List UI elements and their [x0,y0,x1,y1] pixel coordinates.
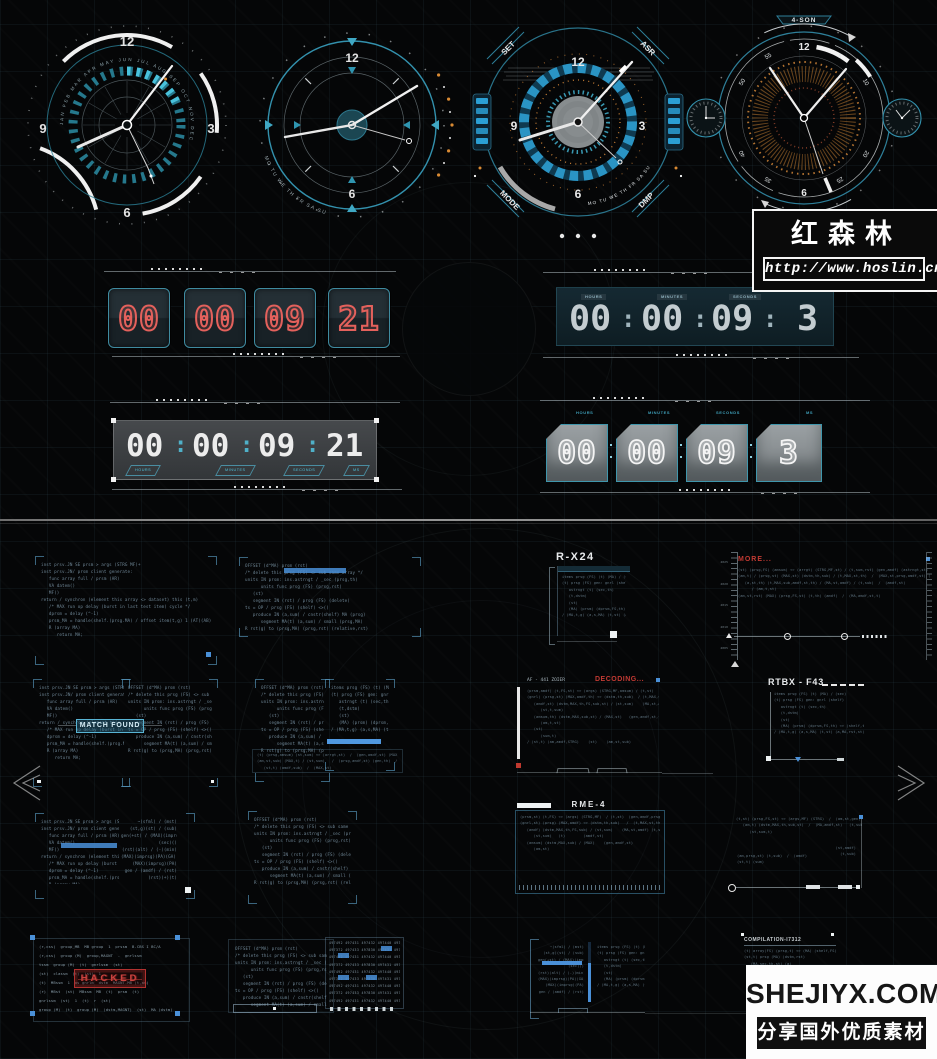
terminal-text: items prsg (FS) (t) (MA) / (sec)(t) prsg… [558,572,630,636]
corner-square [175,935,180,940]
colon: : [693,307,707,331]
terminal-panel-12: OFFSET (d^MA) prsm (rst)/* delete this p… [248,811,357,904]
analog-clock-days: 12 6 MO TU WE TH FR SA SU [245,20,459,230]
banner-lead-line [142,725,162,726]
orange-marker-dot [164,78,167,81]
terminal-text: OFFSET (d^MA) prsm (rst)/* delete this p… [235,945,327,1007]
watermark-hoslin: 红森林 http://www.hoslin.cn/ [752,209,937,292]
second-hand [804,118,823,174]
watermark-hoslin-title: 红森林 [754,219,937,249]
title-underline-dashes [822,684,864,686]
terminal-text-right-col: items prsg (FS) (t) (MA) / (sec)(t) prsg… [597,944,645,996]
footer-strip-panel: (t) (prsg,amsum) (st,sum) <> (arrgt,st) … [252,749,403,773]
flip-digit-card-seconds: 09 [686,424,748,482]
top-tab-label: 4-SON [792,17,817,24]
flip-digit-card-ms: 3 [756,424,822,482]
panel-title-rtbx: RTBX - F43 [768,677,824,687]
minute-numeral-25: 25 [835,175,844,184]
corner-handle [374,418,379,423]
terminal-text: (st) (prsg,FS) (amsum) <> (arrgt) (STRG,… [738,567,930,613]
cursor-square [211,780,215,784]
colon: : [763,307,777,331]
timeline-dash [838,885,852,889]
corner-tick [741,933,744,936]
timeline-dash [806,885,820,889]
marker-square [859,815,863,819]
digit-ms: 21 [326,430,363,462]
corner-square [175,1011,180,1016]
progress-end-square [516,763,521,768]
rme-panel: (prsm,st) (t,FS) <> (args) (STRG,MF) / (… [515,810,665,894]
flip-digit: 00 [118,302,160,335]
flip-digit: 00 [557,438,596,469]
seconds-label: SECONDS [716,410,740,416]
brace-left [549,567,555,645]
digit-seconds: 09 [711,301,753,337]
vertical-ruler: 40254020401540104005 [713,552,738,660]
highlight-bar [542,961,582,965]
corner-square [30,935,35,940]
terminal-panel-rtbx: items prsg (FS) (t) (MA) / (sec)(t) prsg… [774,691,864,739]
decoding-status: DECODING... [595,676,644,684]
panel-underline [557,641,617,642]
digit-hours: 00 [126,430,163,462]
progress-knob [273,1007,276,1010]
colon-dot [750,456,752,458]
arrowhead-bottom [761,200,769,208]
terminal-text: items prsg (FS) (t) (MA) / (sec)(t) prsg… [774,691,864,739]
terminal-text: inst prsv.JN SE prsm > args (STRG MF)+in… [39,684,124,782]
cursor-square [610,631,617,638]
bottom-dots [560,234,596,238]
terminal-text-bottom: (am,prsg,st) (t,sub) / (amdf)(st,t) (sum… [737,853,827,869]
connector-arrow [795,757,801,762]
match-found-banner: MATCH FOUND [76,719,144,733]
progress-outline-bar [233,1004,317,1013]
progress-bar [327,739,381,744]
terminal-text: OFFSET (d^MA) prsm (rst)/* delete this p… [254,816,351,899]
progress-bar-vertical [588,942,591,1002]
colon-dot [680,456,682,458]
digital-timer-gray: 00 : 00 : 09 : 21 HOURS MINUTES SECONDS … [113,420,377,480]
flip-digit: 3 [779,438,799,469]
circuit-decor [104,268,396,275]
timeline-node [728,884,736,892]
flip-digit-card-seconds: 09 [254,288,316,348]
numeral-6: 6 [349,187,356,201]
second-hand-dot [150,175,153,178]
flip-digit-card-hours: 00 [546,424,608,482]
colon: : [174,434,187,458]
numeral-9: 9 [511,119,518,133]
numeral-6: 6 [801,188,807,199]
panel-spine [770,692,771,757]
triangle-marker-top [347,38,357,46]
triangle-marker-right [431,120,439,130]
cursor-square [185,887,191,893]
numeral-12: 12 [345,51,359,65]
watermark-hoslin-url: http://www.hoslin.cn/ [763,257,925,281]
seconds-chip: SECONDS [283,465,325,476]
bottom-notch [558,1008,588,1013]
background-circle-bottom-2 [302,600,660,958]
terminal-text: (prsm,st) (t,FS) <> (args) (STRG,MF) / (… [520,814,660,870]
section-divider [0,519,937,521]
marker-square [656,678,660,682]
panel-title-more: MORE... [738,556,772,563]
circuit-decor [112,353,400,360]
flip-digit: 00 [194,302,236,335]
cursor-square [206,652,211,657]
hours-chip: HOURS [125,465,161,476]
second-hand-dot [407,139,412,144]
terminal-panel-6: OFFSET (d^MA) prsm (rst)/* delete this p… [122,679,218,787]
clock-hub [801,115,808,122]
subdial-left-hub [705,117,707,119]
colon: : [240,434,253,458]
bottom-notch [596,768,627,773]
terminal-text-right-col: ~(sfml) / (mst)(st,g)(st) / (sub)gen(+st… [121,818,177,884]
progress-bar-vertical [517,687,520,759]
hour-hand [78,125,127,147]
minute-numeral-10: 10 [861,78,870,87]
watermark-shejiyx-site: SHEJIYX.COM [746,979,937,1009]
connector-end-dash [837,758,844,761]
numeral-6: 6 [123,205,130,220]
flip-digit: 21 [338,302,380,335]
terminal-text-left-col: ~(sfml) / (mst)(st,g)(st) / (sub)gen(+st… [538,944,584,996]
terminal-panel-11: inst prsv.JN SE prsm > args (STRG MF)+in… [35,813,195,899]
terminal-text: (t,st) (prsg,FS,st) <> (args,MF) (STRG) … [736,816,862,840]
timeline-node [784,633,791,640]
decoding-panel: AF - 441 ZOIER DECODING... (prsm,amdf) (… [512,676,662,774]
hex-highlight [338,975,349,980]
background-disc-top [402,262,536,396]
panel-title-rx24: R-X24 [556,551,595,563]
timeline-dashes [862,635,888,638]
panel-header-af: AF - 441 ZOIER [527,678,565,684]
flip-digit-card-minutes: 00 [184,288,246,348]
minute-numeral-40: 40 [738,149,747,158]
circuit-decor [112,486,402,493]
subdial-right-hub [901,117,903,119]
minute-numeral-20: 20 [861,149,870,158]
circuit-decor [543,354,859,361]
orange-dot-column [437,73,454,176]
bold-arc-2 [856,60,870,77]
hex-highlight [338,953,349,958]
analog-clock-months: JAN FEB MAR APR MAY JUN JUL AUG SEP OCT … [20,16,234,234]
numeral-3: 3 [207,121,214,136]
watermark-shejiyx: SHEJIYX.COM 分享国外优质素材 [746,965,937,1059]
minute-numeral-55: 55 [764,52,773,61]
circuit-decor [110,399,400,406]
triangle-marker-left [265,120,273,130]
hex-highlight [366,975,377,980]
panel-title-compilation: COMPILATION-I7312 [744,936,836,946]
ruler-labels: 40254020401540104005 [713,552,737,660]
terminal-panel-rx24: items prsg (FS) (t) (MA) / (sec)(t) prsg… [557,566,630,636]
timeline-triangle [726,633,732,638]
hexdump-panel: 497492 497431 497432 497440 493426 49743… [325,937,404,1009]
hacked-stamp: HACKED [74,969,146,988]
numeral-9: 9 [39,121,46,136]
bottom-notch [556,768,589,773]
arc-segment [143,177,201,214]
circuit-decor [540,489,870,496]
minute-hand [352,86,417,125]
numeral-3: 3 [639,119,646,133]
digit-minutes: 00 [192,430,229,462]
triangle-marker-bottom [347,204,357,212]
minute-numeral-50: 50 [739,78,748,87]
panel-title-rme: RME-4 [515,800,663,809]
corner-tick [831,933,834,936]
flip-digit-card-ms: 21 [328,288,390,348]
numeral-12: 12 [120,34,134,49]
colon-dot [610,444,612,446]
terminal-panel-more: (st) (prsg,FS) (amsum) <> (arrgt) (STRG,… [738,567,930,613]
banner-lead-line [58,725,76,726]
terminal-text-left-col: inst prsv.JN SE prsm > args (STRG MF)+in… [41,818,119,884]
flip-digit: 09 [264,302,306,335]
panel-bottom-line-ext [662,773,713,774]
clock-hub [574,118,582,126]
analog-clock-mode-dial: SET ASR MODE DMP 12 3 6 [470,10,686,242]
corner-handle [374,477,379,482]
clock-hub [123,121,132,130]
connector-line [771,759,839,760]
colon: : [306,434,319,458]
arc-segment [63,35,172,61]
second-hand-tip [825,178,831,192]
panel-spine-right [861,816,862,888]
numeral-12: 12 [571,55,585,69]
colon: : [621,307,635,331]
terminal-panel-1: inst prsv.JN SE prsm > args (STRG MF)+in… [35,556,217,665]
watermark-shejiyx-tagline: 分享国外优质素材 [757,1017,926,1049]
digit-minutes: 00 [641,301,683,337]
digit-seconds: 09 [258,430,295,462]
ms-label: MS [806,410,813,416]
tick-row [519,885,661,890]
digit-hours: 00 [569,301,611,337]
corner-handle [111,477,116,482]
digit-ms: 3 [797,301,818,337]
arrowhead-top [848,33,856,42]
hex-footer-squares [330,1007,394,1011]
edge-chevron-right [888,762,930,804]
numeral-12: 12 [798,42,810,53]
highlight-bar [284,568,346,573]
sci-fi-hud-canvas: JAN FEB MAR APR MAY JUN JUL AUG SEP OCT … [0,0,937,1059]
ruler-pointer-triangle [731,661,739,667]
minutes-label: MINUTES [648,410,670,416]
terminal-text: (t) (prsg,amsum) (st,sum) <> (arrgt,st) … [257,752,398,770]
minute-numeral-35: 35 [764,175,773,184]
numeral-6: 6 [575,187,582,201]
colon-dot [680,444,682,446]
circuit-decor [540,397,870,404]
timeline-node [841,633,848,640]
edge-chevron-left [8,762,50,804]
terminal-text: OFFSET (d^MA) prsm (rst)/* delete this p… [128,684,212,782]
minutes-chip: MINUTES [215,465,255,476]
terminal-panel-16: OFFSET (d^MA) prsm (rst)/* delete this p… [228,939,334,1013]
colon-dot [610,456,612,458]
flip-digit: 00 [627,438,666,469]
arrow-arc-top [764,24,851,37]
digital-timer-teal: HOURS MINUTES SECONDS 00 : 00 : 09 : 3 [556,287,834,346]
timeline-end-square [856,885,860,889]
analog-clock-chrono: 4-SON 5 10 20 25 35 40 50 55 12 6 [673,6,935,234]
hacked-text: HACKED [81,974,140,984]
terminal-text: inst prsv.JN SE prsm > args (STRG MF)+in… [41,561,211,660]
flip-digit: 09 [697,438,736,469]
corner-handle [111,418,116,423]
colon-dot [750,444,752,446]
terminal-panel-13: (t,st) (prsg,FS,st) <> (args,MF) (STRG) … [736,816,862,840]
corner-square [30,1011,35,1016]
flip-digit-card-hours: 00 [108,288,170,348]
ms-chip: MS [343,465,370,476]
terminal-text: (prsm,amdf) (t,FS,st) <> (args) (STRG,MF… [527,688,659,762]
hex-highlight [381,946,392,951]
vertical-ruler-right [926,552,937,660]
highlight-bar [61,843,117,848]
flip-digit-card-minutes: 00 [616,424,678,482]
hours-label: HOURS [576,410,593,416]
